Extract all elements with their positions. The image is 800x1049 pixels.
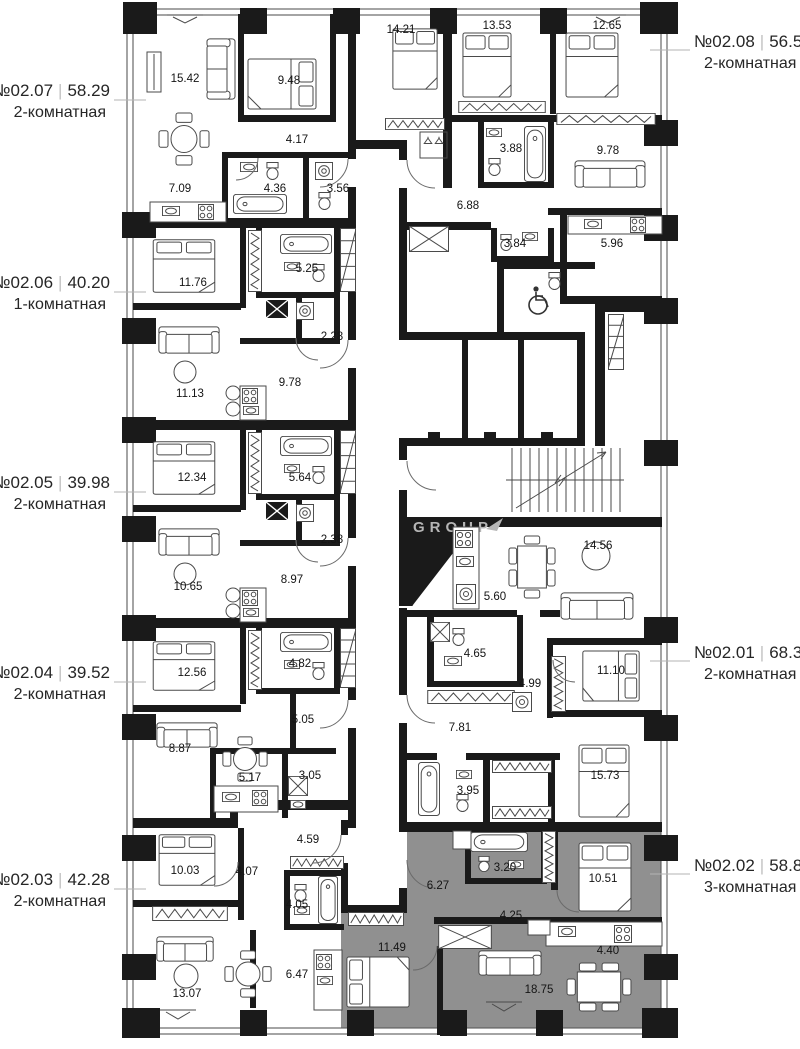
shaft-icon (608, 314, 624, 369)
room-area-label: 14.56 (584, 540, 613, 552)
wardrobe-icon (493, 760, 552, 772)
bed-icon (566, 33, 618, 97)
wardrobe-icon (249, 231, 262, 292)
room-area-label: 6.47 (286, 969, 308, 981)
room-area-label: 11.76 (179, 277, 207, 289)
table-icon (174, 964, 198, 988)
room-area-label: 3.20 (494, 862, 516, 874)
room-area-label: 14.21 (387, 24, 416, 36)
wardrobe-icon (493, 806, 552, 818)
sink-icon (456, 770, 471, 778)
sofa-icon (159, 327, 219, 353)
duct (528, 920, 550, 935)
room-area-label: 7.09 (169, 183, 191, 195)
toilet-icon (549, 272, 560, 289)
sofa-icon (159, 529, 219, 555)
bed-icon (159, 835, 215, 886)
stove-icon (630, 217, 645, 232)
room-area-label: 13.53 (483, 20, 512, 32)
sink-icon (243, 608, 258, 616)
room-area-label: 3.88 (500, 143, 522, 155)
floor-plan-page: GROUP (0, 0, 800, 1049)
bathtub-icon (524, 127, 545, 182)
room-area-label: 3.05 (299, 770, 321, 782)
shaft-icon (438, 925, 492, 949)
sofa-icon (207, 39, 235, 99)
room-area-label: 11.13 (176, 388, 204, 400)
room-area-label: 12.65 (593, 20, 622, 32)
washer-icon (457, 585, 476, 604)
apartment-number-area: №02.02|58.87 (694, 856, 800, 875)
sofa-icon (575, 161, 645, 187)
sink-icon (243, 406, 258, 414)
sink-icon (444, 656, 461, 665)
stove-icon (242, 388, 257, 403)
stove-icon (316, 954, 331, 969)
stove-icon (456, 531, 473, 548)
room-area-label: 4.36 (264, 183, 286, 195)
wardrobe-icon (153, 907, 228, 921)
apartment-type: 1-комнатная (14, 296, 106, 313)
sink-icon (162, 206, 179, 215)
wardrobe-icon (348, 913, 403, 926)
bathtub-icon (280, 436, 331, 455)
toilet-icon (457, 794, 468, 811)
sink-icon (222, 792, 239, 801)
wardrobe-icon (428, 691, 515, 704)
room-area-label: 13.07 (173, 988, 202, 1000)
room-area-label: 4.17 (286, 134, 308, 146)
toilet-icon (453, 628, 464, 645)
room-area-label: 6.88 (457, 200, 479, 212)
kitchen-counter (568, 216, 662, 234)
toilet-icon (489, 158, 500, 175)
sink-icon (584, 219, 601, 228)
stove-icon (252, 790, 267, 805)
room-area-label: 9.78 (597, 145, 619, 157)
room-area-label: 4.65 (464, 648, 486, 660)
apartment-type: 2-комнатная (704, 55, 796, 72)
bathtub-icon (280, 632, 331, 651)
duct (453, 831, 471, 849)
room-area-label: 9.78 (279, 377, 301, 389)
apartment-number-area: №02.08|56.52 (694, 32, 800, 51)
toilet-icon (313, 662, 324, 679)
bed-icon (153, 442, 215, 494)
sink-icon (290, 800, 305, 808)
wardrobe-icon (386, 118, 445, 129)
apartment-type: 2-комнатная (14, 686, 106, 703)
room-area-label: 3.56 (327, 183, 349, 195)
shaft-icon (340, 229, 356, 292)
sink-icon (240, 162, 257, 171)
washer-icon (513, 693, 532, 712)
room-area-label: 18.75 (525, 984, 554, 996)
room-area-label: 5.05 (292, 714, 314, 726)
stove-icon (198, 204, 213, 219)
washer-icon (296, 302, 313, 319)
toilet-icon (319, 192, 330, 209)
room-area-label: 10.51 (589, 873, 618, 885)
bathtub-icon (471, 832, 528, 851)
wardrobe-icon (557, 113, 655, 124)
wardrobe-icon (543, 831, 556, 882)
room-area-label: 8.97 (281, 574, 303, 586)
bathtub-icon (418, 763, 439, 816)
apartment-type: 2-комнатная (14, 496, 106, 513)
bathtub-icon (318, 876, 337, 923)
washer-icon (296, 504, 313, 521)
room-area-label: 5.25 (296, 263, 318, 275)
washer-icon (315, 162, 332, 179)
room-area-label: 10.03 (171, 865, 200, 877)
apartment-type: 2-комнатная (704, 666, 796, 683)
room-area-label: 10.65 (174, 581, 203, 593)
wardrobe-icon (249, 631, 262, 690)
room-area-label: 4.40 (597, 945, 619, 957)
apartment-type: 3-комнатная (704, 879, 796, 896)
room-area-label: 15.42 (171, 73, 200, 85)
bathtub-icon (234, 194, 287, 213)
room-area-label: 4.99 (519, 678, 541, 690)
sofa-icon (479, 951, 541, 975)
room-area-label: 7.81 (449, 722, 471, 734)
floor-plan: GROUP (0, 0, 800, 1049)
room-area-label: 12.56 (178, 667, 207, 679)
wardrobe-icon (459, 101, 546, 112)
apartment-type: 2-комнатная (14, 893, 106, 910)
kitchen-counter (150, 202, 226, 222)
sink-icon (456, 556, 473, 566)
shaft-icon (409, 226, 449, 252)
stove-icon (242, 590, 257, 605)
room-area-label: 4.82 (289, 658, 311, 670)
room-area-label: 5.60 (484, 591, 506, 603)
room-area-label: 9.48 (278, 75, 300, 87)
bed-icon (463, 33, 511, 97)
room-area-label: 12.34 (178, 472, 207, 484)
room-area-label: 11.49 (378, 942, 406, 954)
toilet-icon (479, 856, 489, 871)
shaft-icon (340, 629, 356, 688)
room-area-label: 3.84 (504, 238, 527, 250)
room-area-label: 2.38 (321, 534, 343, 546)
room-area-label: 15.73 (591, 770, 620, 782)
apartment-number-area: №02.01|68.39 (694, 643, 800, 662)
toilet-icon (267, 162, 278, 179)
room-area-label: 5.17 (239, 772, 261, 784)
room-area-label: 6.27 (427, 880, 449, 892)
room-area-label: 5.64 (289, 472, 312, 484)
bathtub-icon (280, 234, 331, 253)
stove-icon (615, 926, 632, 943)
room-area-label: 8.87 (169, 743, 191, 755)
room-area-label: 11.10 (597, 665, 625, 677)
toilet-icon (313, 466, 324, 483)
room-area-label: 4.25 (500, 910, 522, 922)
table-icon (174, 361, 196, 383)
room-area-label: 3.95 (457, 785, 479, 797)
sink-icon (317, 976, 332, 984)
shower-icon (430, 622, 450, 642)
bed-icon (153, 642, 215, 691)
apartment-type: 2-комнатная (14, 104, 106, 121)
bed-icon (347, 957, 409, 1007)
bed-icon (393, 29, 437, 89)
room-area-label: 4.05 (286, 899, 308, 911)
room-area-label: 2.28 (321, 331, 343, 343)
shaft-icon (340, 431, 356, 494)
sink-icon (486, 128, 501, 136)
wardrobe-icon (249, 433, 262, 494)
sofa-icon (157, 937, 213, 961)
sink-icon (558, 926, 575, 936)
sofa-icon (561, 593, 633, 619)
room-area-label: 5.96 (601, 238, 623, 250)
room-area-label: 4.07 (236, 866, 258, 878)
room-area-label: 4.59 (297, 834, 319, 846)
